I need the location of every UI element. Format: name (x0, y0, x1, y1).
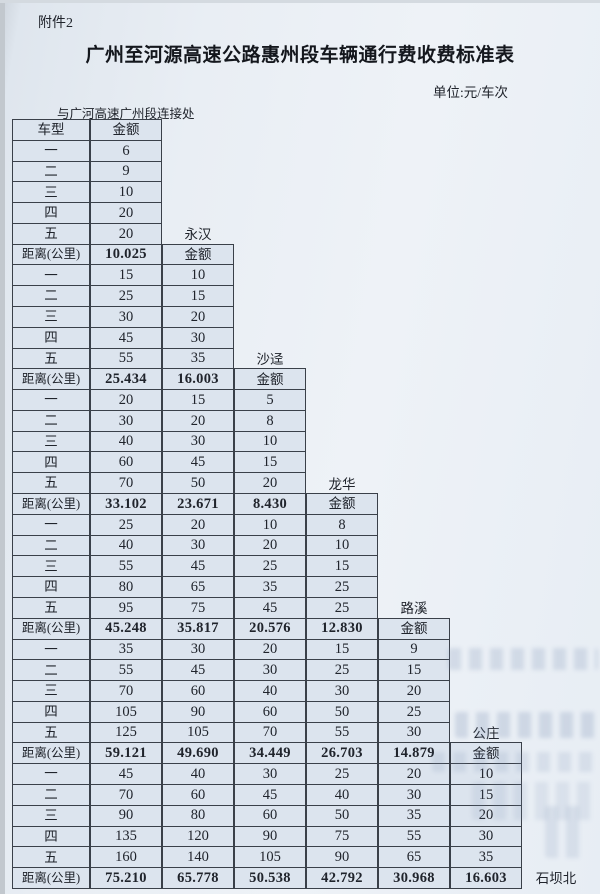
fee-cell: 30 (162, 639, 234, 661)
fee-cell: 125 (90, 722, 162, 744)
fee-cell: 45 (162, 451, 234, 473)
fee-cell: 20 (162, 410, 234, 432)
fee-cell: 75 (162, 597, 234, 619)
vehicle-class-cell: 一 (12, 389, 90, 411)
vehicle-class-cell: 二 (12, 285, 90, 307)
fee-cell: 15 (90, 264, 162, 286)
fee-cell: 25 (306, 659, 378, 681)
vehicle-class-cell: 二 (12, 784, 90, 806)
fee-cell: 30 (450, 826, 522, 848)
fee-cell: 65 (162, 576, 234, 598)
fee-cell: 55 (90, 659, 162, 681)
fee-cell: 40 (162, 763, 234, 785)
fee-cell: 25 (90, 285, 162, 307)
fee-cell: 35 (234, 576, 306, 598)
distance-cell: 10.025 (90, 244, 162, 266)
page-title: 广州至河源高速公路惠州段车辆通行费收费标准表 (0, 40, 600, 67)
fee-cell: 20 (90, 223, 162, 245)
fee-cell: 15 (162, 389, 234, 411)
attachment-label: 附件2 (38, 12, 73, 32)
fee-cell: 10 (234, 431, 306, 453)
vehicle-class-cell: 五 (12, 348, 90, 370)
fee-cell: 15 (234, 451, 306, 473)
fee-cell: 20 (162, 514, 234, 536)
fee-cell: 90 (306, 846, 378, 868)
fee-cell: 35 (450, 846, 522, 868)
fee-cell: 15 (162, 285, 234, 307)
distance-cell: 33.102 (90, 493, 162, 515)
amount-header: 金额 (234, 368, 306, 390)
vehicle-class-cell: 一 (12, 140, 90, 162)
fee-cell: 30 (162, 535, 234, 557)
fee-cell: 60 (90, 451, 162, 473)
distance-cell: 50.538 (234, 867, 306, 889)
fee-cell: 60 (234, 701, 306, 723)
vehicle-class-cell: 五 (12, 597, 90, 619)
fee-cell: 70 (90, 472, 162, 494)
fee-cell: 25 (234, 555, 306, 577)
fee-cell: 25 (90, 514, 162, 536)
fee-cell: 10 (306, 535, 378, 557)
fee-cell: 35 (162, 348, 234, 370)
fee-cell: 105 (162, 722, 234, 744)
amount-header: 金额 (306, 493, 378, 515)
amount-header: 金额 (378, 618, 450, 640)
fee-cell: 50 (306, 805, 378, 827)
fee-cell: 15 (306, 555, 378, 577)
fee-cell: 30 (234, 659, 306, 681)
fee-cell: 25 (306, 763, 378, 785)
fee-cell: 20 (90, 202, 162, 224)
vehicle-class-cell: 三 (12, 306, 90, 328)
distance-label-cell: 距离(公里) (12, 618, 90, 640)
fee-cell: 15 (450, 784, 522, 806)
distance-cell: 49.690 (162, 742, 234, 764)
fee-cell: 140 (162, 846, 234, 868)
scan-top-edge (0, 0, 600, 3)
fee-cell: 50 (162, 472, 234, 494)
distance-cell: 75.210 (90, 867, 162, 889)
fee-cell: 30 (90, 306, 162, 328)
fee-cell: 55 (306, 722, 378, 744)
scan-edge-shadow (0, 0, 5, 894)
fee-cell: 10 (234, 514, 306, 536)
distance-cell: 16.003 (162, 368, 234, 390)
fee-cell: 20 (234, 472, 306, 494)
fee-cell: 8 (306, 514, 378, 536)
fee-cell: 55 (90, 555, 162, 577)
fee-cell: 70 (90, 784, 162, 806)
fee-cell: 45 (90, 327, 162, 349)
fee-cell: 75 (306, 826, 378, 848)
fee-cell: 135 (90, 826, 162, 848)
fee-cell: 105 (234, 846, 306, 868)
fee-cell: 25 (306, 576, 378, 598)
fee-cell: 45 (162, 659, 234, 681)
fee-cell: 25 (378, 701, 450, 723)
vehicle-class-cell: 四 (12, 701, 90, 723)
fee-cell: 40 (234, 680, 306, 702)
fee-cell: 6 (90, 140, 162, 162)
fee-cell: 55 (378, 826, 450, 848)
fee-cell: 30 (234, 763, 306, 785)
fee-cell: 20 (162, 306, 234, 328)
fee-cell: 20 (90, 389, 162, 411)
fee-cell: 10 (450, 763, 522, 785)
vehicle-class-cell: 四 (12, 451, 90, 473)
fee-cell: 90 (162, 701, 234, 723)
fee-cell: 30 (378, 784, 450, 806)
station-label: 龙华 (306, 472, 378, 493)
toll-fee-table: 车型金额一6二9三10四20五20永汉距离(公里)10.025金额一1510二2… (12, 119, 600, 894)
vehicle-class-cell: 一 (12, 514, 90, 536)
fee-cell: 25 (306, 597, 378, 619)
distance-label-cell: 距离(公里) (12, 493, 90, 515)
distance-cell: 8.430 (234, 493, 306, 515)
fee-cell: 55 (90, 348, 162, 370)
fee-cell: 40 (306, 784, 378, 806)
distance-cell: 42.792 (306, 867, 378, 889)
amount-header: 金额 (90, 119, 162, 141)
vehicle-class-cell: 四 (12, 576, 90, 598)
distance-label-cell: 距离(公里) (12, 368, 90, 390)
vehicle-class-cell: 四 (12, 826, 90, 848)
distance-cell: 30.968 (378, 867, 450, 889)
fee-cell: 20 (234, 639, 306, 661)
fee-cell: 60 (162, 680, 234, 702)
vehicle-class-cell: 三 (12, 431, 90, 453)
fee-cell: 20 (378, 763, 450, 785)
fee-cell: 9 (90, 161, 162, 183)
vehicle-class-cell: 三 (12, 181, 90, 203)
fee-cell: 60 (162, 784, 234, 806)
vehicle-class-cell: 五 (12, 223, 90, 245)
distance-cell: 20.576 (234, 618, 306, 640)
distance-cell: 12.830 (306, 618, 378, 640)
fee-cell: 10 (162, 264, 234, 286)
fee-cell: 20 (234, 535, 306, 557)
vehicle-class-cell: 三 (12, 805, 90, 827)
vehicle-class-cell: 五 (12, 722, 90, 744)
fee-cell: 30 (90, 410, 162, 432)
fee-cell: 45 (162, 555, 234, 577)
fee-cell: 30 (162, 327, 234, 349)
fee-cell: 9 (378, 639, 450, 661)
distance-cell: 26.703 (306, 742, 378, 764)
fee-cell: 20 (378, 680, 450, 702)
station-label: 公庄 (450, 722, 522, 743)
vehicle-class-cell: 四 (12, 327, 90, 349)
distance-cell: 23.671 (162, 493, 234, 515)
station-label: 沙迳 (234, 348, 306, 369)
vehicle-class-cell: 二 (12, 535, 90, 557)
fee-cell: 120 (162, 826, 234, 848)
fee-cell: 45 (234, 784, 306, 806)
fee-cell: 45 (234, 597, 306, 619)
fee-cell: 15 (306, 639, 378, 661)
distance-cell: 34.449 (234, 742, 306, 764)
fee-cell: 70 (90, 680, 162, 702)
fee-cell: 8 (234, 410, 306, 432)
fee-cell: 30 (162, 431, 234, 453)
vehicle-type-header: 车型 (12, 119, 90, 141)
vehicle-class-cell: 三 (12, 680, 90, 702)
fee-cell: 15 (378, 659, 450, 681)
distance-label-cell: 距离(公里) (12, 742, 90, 764)
fee-cell: 40 (90, 431, 162, 453)
amount-header: 金额 (162, 244, 234, 266)
vehicle-class-cell: 二 (12, 659, 90, 681)
fee-cell: 30 (378, 722, 450, 744)
fee-cell: 70 (234, 722, 306, 744)
vehicle-class-cell: 一 (12, 264, 90, 286)
station-label: 永汉 (162, 223, 234, 244)
distance-cell: 45.248 (90, 618, 162, 640)
station-label: 路溪 (378, 597, 450, 618)
scanned-document-page: { "page": { "attachment_label": "附件2", "… (0, 0, 600, 894)
distance-cell: 25.434 (90, 368, 162, 390)
fee-cell: 35 (378, 805, 450, 827)
fee-cell: 40 (90, 535, 162, 557)
distance-cell: 65.778 (162, 867, 234, 889)
distance-cell: 14.879 (378, 742, 450, 764)
vehicle-class-cell: 五 (12, 472, 90, 494)
fee-cell: 65 (378, 846, 450, 868)
station-label: 石坝北 (526, 867, 586, 888)
vehicle-class-cell: 二 (12, 410, 90, 432)
fee-cell: 5 (234, 389, 306, 411)
amount-header: 金额 (450, 742, 522, 764)
fee-cell: 20 (450, 805, 522, 827)
distance-label-cell: 距离(公里) (12, 867, 90, 889)
vehicle-class-cell: 一 (12, 763, 90, 785)
vehicle-class-cell: 四 (12, 202, 90, 224)
fee-cell: 10 (90, 181, 162, 203)
distance-label-cell: 距离(公里) (12, 244, 90, 266)
fee-cell: 90 (90, 805, 162, 827)
distance-cell: 35.817 (162, 618, 234, 640)
fee-cell: 95 (90, 597, 162, 619)
vehicle-class-cell: 五 (12, 846, 90, 868)
distance-cell: 59.121 (90, 742, 162, 764)
fee-cell: 80 (90, 576, 162, 598)
unit-note: 单位:元/车次 (433, 81, 508, 101)
vehicle-class-cell: 二 (12, 161, 90, 183)
fee-cell: 60 (234, 805, 306, 827)
fee-cell: 90 (234, 826, 306, 848)
fee-cell: 35 (90, 639, 162, 661)
fee-cell: 45 (90, 763, 162, 785)
fee-cell: 30 (306, 680, 378, 702)
fee-cell: 50 (306, 701, 378, 723)
fee-cell: 80 (162, 805, 234, 827)
fee-cell: 160 (90, 846, 162, 868)
vehicle-class-cell: 一 (12, 639, 90, 661)
vehicle-class-cell: 三 (12, 555, 90, 577)
distance-cell: 16.603 (450, 867, 522, 889)
fee-cell: 105 (90, 701, 162, 723)
